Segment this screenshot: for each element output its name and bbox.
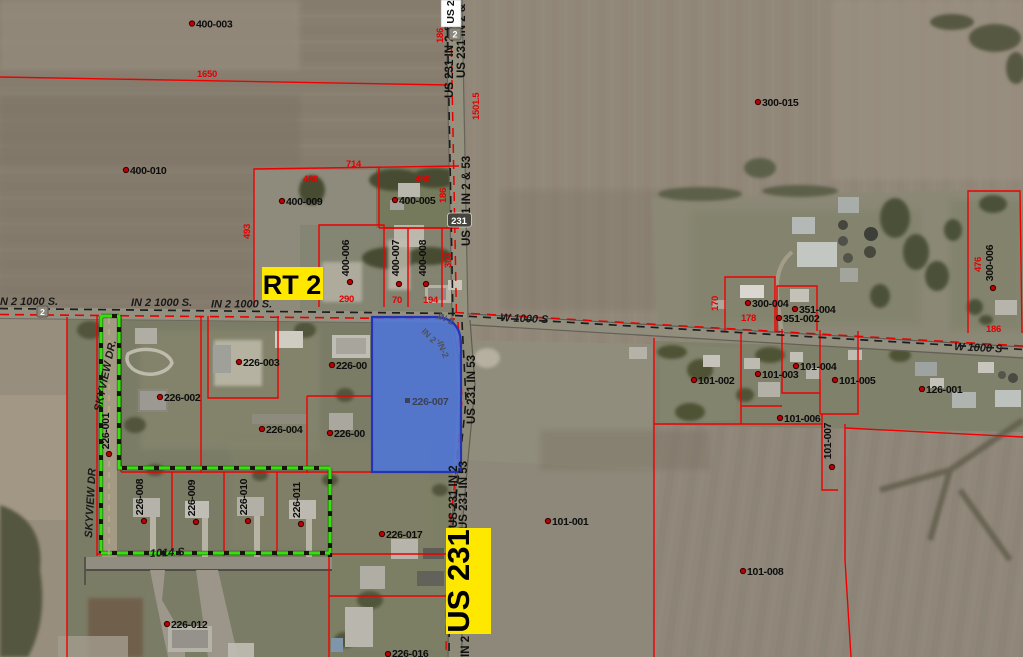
svg-text:W 1000 S: W 1000 S [500,312,549,326]
svg-text:400-007: 400-007 [390,239,402,276]
svg-text:101-003: 101-003 [762,369,799,381]
svg-text:226-001: 226-001 [100,412,112,449]
svg-text:226-010: 226-010 [238,478,250,515]
svg-text:W 1000 S: W 1000 S [954,341,1004,356]
svg-text:1501.5: 1501.5 [471,92,482,120]
svg-text:226-016: 226-016 [392,648,429,657]
svg-text:226-002: 226-002 [164,392,201,404]
svg-text:US 231: US 231 [441,529,476,632]
svg-text:US 2: US 2 [445,0,457,24]
svg-text:303: 303 [443,253,454,268]
svg-text:101-006: 101-006 [784,413,821,425]
svg-text:400-003: 400-003 [196,19,233,31]
svg-text:186: 186 [438,188,449,203]
svg-text:400-009: 400-009 [286,196,323,208]
svg-text:231: 231 [451,216,468,227]
svg-text:101-005: 101-005 [839,375,876,387]
svg-text:490: 490 [415,174,430,185]
svg-text:1014 S: 1014 S [150,546,186,560]
svg-text:400-005: 400-005 [399,195,436,207]
svg-text:226-003: 226-003 [243,357,280,369]
svg-text:480: 480 [303,174,318,185]
svg-text:US 231 IN 53: US 231 IN 53 [466,355,478,424]
svg-text:226-011: 226-011 [291,482,303,518]
svg-text:101-002: 101-002 [698,375,735,387]
svg-text:226-00: 226-00 [336,360,367,372]
svg-text:101-007: 101-007 [822,422,834,459]
svg-text:290: 290 [339,294,354,305]
svg-text:300-004: 300-004 [752,298,789,310]
svg-text:226-012: 226-012 [171,619,208,631]
svg-text:IN 2 1000 S.: IN 2 1000 S. [211,299,272,311]
svg-text:101-008: 101-008 [747,566,784,578]
svg-text:226-009: 226-009 [186,479,198,516]
svg-text:101-004: 101-004 [800,361,837,373]
svg-text:400-006: 400-006 [340,239,352,276]
svg-text:2: 2 [40,307,45,317]
svg-text:170: 170 [710,296,721,311]
svg-text:476: 476 [973,257,984,272]
svg-text:226-007: 226-007 [412,396,449,408]
svg-text:70: 70 [392,295,402,306]
svg-text:126-001: 126-001 [926,384,963,396]
svg-text:US 231 IN 53: US 231 IN 53 [458,461,470,530]
svg-text:2: 2 [452,30,457,40]
svg-text:714: 714 [346,159,362,170]
svg-text:300-006: 300-006 [984,244,996,281]
svg-text:400-008: 400-008 [417,239,429,276]
svg-text:226-008: 226-008 [134,478,146,515]
svg-text:IN 2 1000 S.: IN 2 1000 S. [131,297,192,309]
svg-text:1650: 1650 [197,69,217,80]
svg-text:300-015: 300-015 [762,97,799,109]
svg-text:N 2 1000 S.: N 2 1000 S. [0,296,58,308]
svg-text:226-017: 226-017 [386,529,423,541]
svg-text:400-010: 400-010 [130,165,167,177]
svg-text:194: 194 [423,295,439,306]
svg-text:186: 186 [986,324,1001,335]
svg-text:178: 178 [741,313,756,324]
svg-text:351-002: 351-002 [783,313,820,325]
svg-text:101-001: 101-001 [552,516,589,528]
svg-text:RT 2: RT 2 [263,270,322,300]
svg-text:226-00: 226-00 [334,428,365,440]
svg-text:226-004: 226-004 [266,424,303,436]
svg-text:493: 493 [242,224,253,239]
svg-text:US 231 IN 2 & 53: US 231 IN 2 & 53 [461,156,473,246]
